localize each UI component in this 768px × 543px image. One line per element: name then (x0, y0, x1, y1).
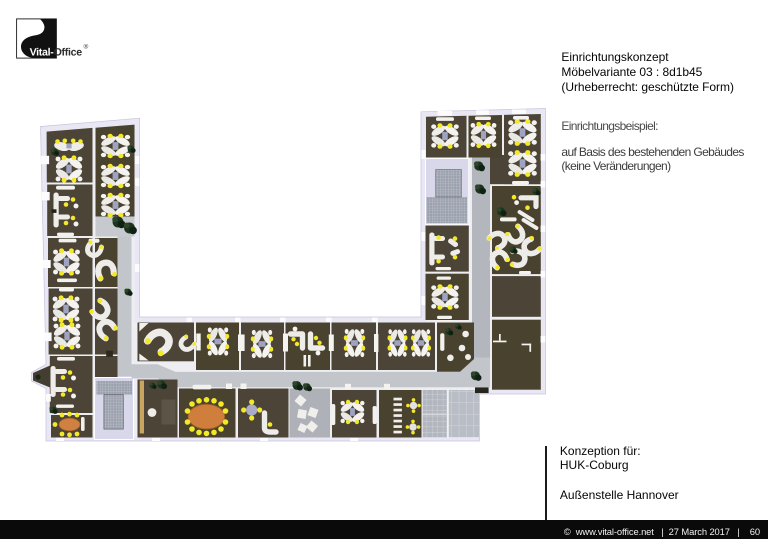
svg-text:®: ® (84, 44, 89, 51)
svg-text:Vital-: Vital- (30, 46, 55, 58)
svg-text:Office: Office (54, 46, 83, 58)
